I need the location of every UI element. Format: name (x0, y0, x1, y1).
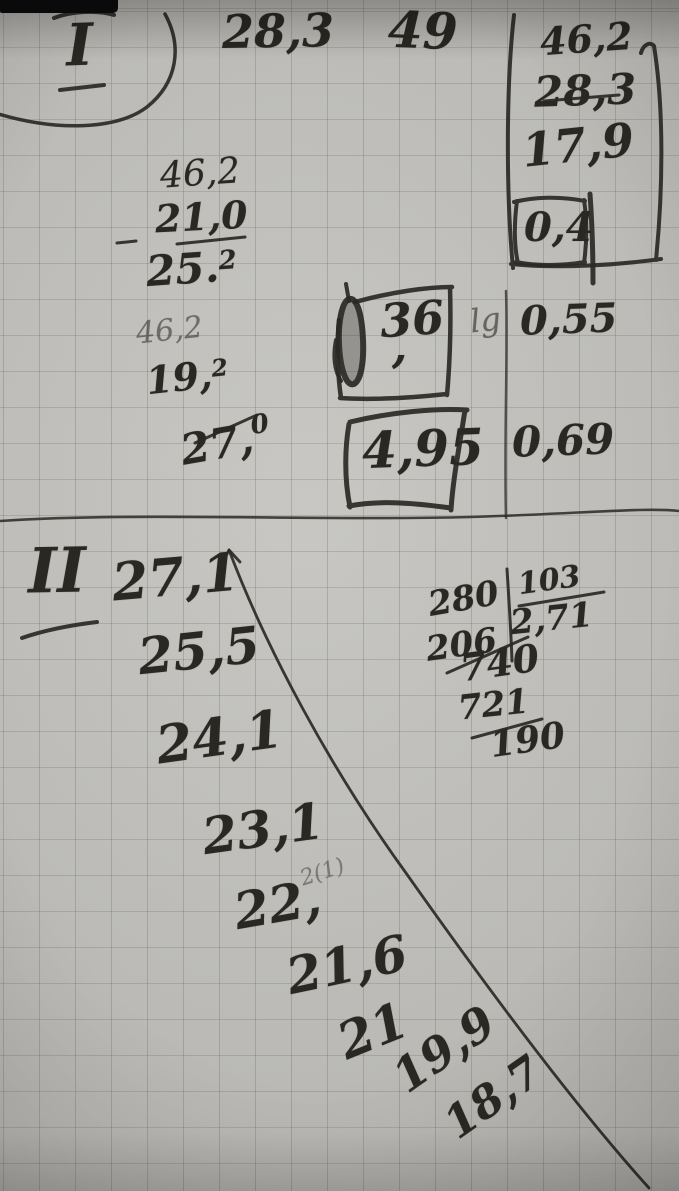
film-edge-black-mark (0, 0, 118, 13)
sub2-subtrahend: 19,2 (144, 354, 230, 400)
sub1-result-sup: 2 (218, 245, 238, 276)
division-quotient: 2,71 (508, 598, 594, 640)
sub2-result-sup: 0 (248, 408, 271, 441)
boxed-value-495: 4,95 (361, 422, 484, 476)
scribble-blot (339, 299, 363, 384)
series-value-0: 27,1 (110, 547, 241, 610)
faint-correction-note: 2(1) (298, 856, 348, 891)
value-0-69: 0,69 (511, 418, 615, 464)
value-28-3: 28,3 (222, 7, 335, 55)
roman-one-underline-stroke (60, 85, 104, 90)
boxed-result-04: 0,4 (524, 208, 594, 248)
right-calc-row2: 28,3 (533, 68, 637, 114)
sub2-result: 27,0 (177, 410, 275, 471)
sub2-minuend: 46,2 (135, 313, 205, 350)
division-bring-down: 740 (458, 639, 542, 688)
right-calc-row1: 46,2 (539, 17, 634, 61)
sub1-result-main: 25. (144, 242, 220, 296)
series-value-3: 23,1 (199, 796, 327, 862)
section-divider-line (0, 510, 679, 521)
division-divisor: 103 (516, 562, 582, 600)
sub1-result: 25.2 (145, 245, 239, 293)
scribbled-value: 49 (387, 5, 458, 57)
sub2-result-main: 27, (177, 414, 257, 475)
scribble-blot-tail (334, 284, 349, 381)
series-value-1: 25,5 (136, 620, 262, 682)
section-one-label: I (65, 16, 94, 75)
sub2-subtrahend-sup: 2 (210, 353, 229, 383)
section-two-label: II (27, 539, 86, 602)
boxed-value-36: 36 (378, 294, 445, 344)
series-value-2: 24,1 (153, 703, 286, 772)
sub1-subtrahend: 21,0 (154, 196, 248, 239)
division-remainder: 190 (488, 717, 567, 763)
boxed-36-comma: , (392, 326, 407, 370)
right-calc-row3: 17,9 (520, 116, 636, 173)
division-dividend: 280 (426, 576, 502, 622)
value-0-55: 0,55 (519, 298, 618, 341)
roman-two-underline-stroke (22, 622, 97, 638)
sub1-minuend: 46,2 (159, 153, 241, 195)
notebook-page-photo: I 28,3 49 46,2 28,3 17,9 0,4 46,2 21,0 2… (0, 0, 679, 1191)
sub2-subtrahend-main: 19, (144, 352, 214, 404)
lg-label: lg (468, 302, 502, 337)
lg-column-bar (505, 291, 506, 518)
